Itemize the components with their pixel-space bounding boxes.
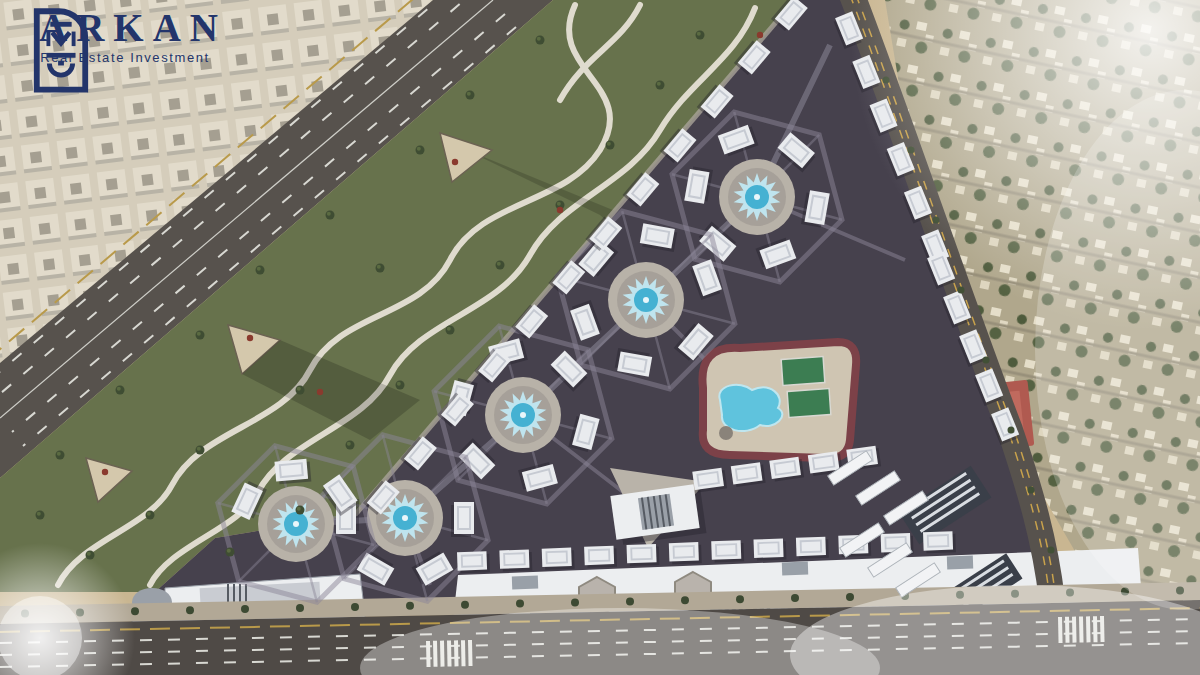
street-tree	[791, 594, 799, 602]
crosswalk-stripe	[454, 640, 459, 666]
red-shrub	[757, 32, 763, 38]
street-tree	[351, 603, 359, 611]
townhouse-row-unit	[692, 467, 727, 492]
street-tree	[736, 595, 744, 603]
palm-tree	[416, 146, 425, 155]
street-tree	[241, 605, 249, 613]
street-tree	[1008, 427, 1015, 434]
townhouse-row-unit	[542, 548, 575, 570]
palm-tree	[226, 548, 235, 557]
townhouse-row-unit	[627, 544, 660, 566]
palm-tree	[536, 36, 545, 45]
pool-fountain	[754, 194, 760, 200]
street-tree	[571, 599, 579, 607]
palm-tree	[296, 506, 305, 515]
master-plan-scene: ARKAN Real Estate Investment	[0, 0, 1200, 675]
crosswalk-stripe	[440, 641, 445, 667]
townhouse-row-unit	[711, 540, 744, 562]
palm-tree	[86, 551, 95, 560]
crosswalk-stripe	[1086, 616, 1091, 642]
red-shrub	[247, 335, 253, 341]
pool-fountain	[402, 515, 408, 521]
mall-roof-well	[947, 556, 973, 570]
street-tree	[21, 610, 29, 618]
townhouse-row-unit	[731, 462, 766, 487]
crosswalk-stripe	[468, 640, 473, 666]
townhouse-row-unit	[457, 551, 490, 573]
palm-tree	[496, 261, 505, 270]
street-tree	[131, 607, 139, 615]
palm-tree	[196, 331, 205, 340]
pool-fountain	[520, 412, 526, 418]
street-tree	[908, 147, 915, 154]
mall-roof-well	[512, 576, 538, 590]
townhouse-row-unit	[669, 542, 702, 564]
palm-tree	[56, 451, 65, 460]
street-tree	[933, 217, 940, 224]
red-shrub	[102, 469, 108, 475]
street-tree	[186, 606, 194, 614]
street-tree	[956, 591, 964, 599]
crosswalk-stripe	[461, 640, 466, 666]
crosswalk-stripe	[1058, 617, 1063, 643]
crosswalk-stripe	[433, 641, 438, 667]
street-tree	[1048, 547, 1055, 554]
palm-tree	[36, 511, 45, 520]
mall-roof-well	[782, 562, 808, 576]
crosswalk-stripe	[1065, 617, 1070, 643]
palm-tree	[326, 211, 335, 220]
sports-court	[787, 389, 831, 418]
townhouse-row-unit	[769, 456, 804, 481]
red-shrub	[317, 389, 323, 395]
pool-fountain	[293, 521, 299, 527]
street-tree	[461, 601, 469, 609]
street-tree	[1066, 589, 1074, 597]
street-tree	[626, 597, 634, 605]
crosswalk-stripe	[1079, 616, 1084, 642]
villa-building	[451, 502, 474, 537]
townhouse-row-unit	[584, 546, 617, 568]
street-tree	[958, 287, 965, 294]
palm-tree	[446, 326, 455, 335]
palm-tree	[346, 441, 355, 450]
palm-tree	[256, 266, 265, 275]
sports-court	[781, 357, 825, 386]
red-shrub	[557, 207, 563, 213]
palm-tree	[296, 386, 305, 395]
townhouse-row-unit	[499, 549, 532, 571]
palm-tree	[606, 141, 615, 150]
site-plan-map	[0, 0, 1200, 675]
palm-tree	[396, 381, 405, 390]
pool-deck-island	[719, 426, 733, 440]
street-tree	[406, 602, 414, 610]
crosswalk-stripe	[1093, 616, 1098, 642]
pool-fountain	[643, 297, 649, 303]
crosswalk-stripe	[447, 640, 452, 666]
arkan-logo-mark	[30, 4, 92, 94]
palm-tree	[146, 511, 155, 520]
brand-logo: ARKAN Real Estate Investment	[30, 4, 220, 65]
crosswalk-stripe	[1072, 617, 1077, 643]
palm-tree	[196, 446, 205, 455]
street-tree	[76, 608, 84, 616]
crosswalk-stripe	[1100, 616, 1105, 642]
street-tree	[516, 600, 524, 608]
townhouse-row-unit	[754, 538, 787, 560]
villa-building	[274, 459, 311, 485]
street-tree	[681, 596, 689, 604]
street-tree	[296, 604, 304, 612]
palm-tree	[376, 264, 385, 273]
street-tree	[1028, 487, 1035, 494]
palm-tree	[656, 81, 665, 90]
street-tree	[1011, 590, 1019, 598]
townhouse-row-unit	[923, 531, 956, 553]
palm-tree	[116, 386, 125, 395]
street-tree	[983, 357, 990, 364]
townhouse-row-unit	[796, 537, 829, 559]
street-tree	[1176, 586, 1184, 594]
street-tree	[883, 77, 890, 84]
street-tree	[846, 593, 854, 601]
red-shrub	[452, 159, 458, 165]
crosswalk-stripe	[426, 641, 431, 667]
street-tree	[1121, 588, 1129, 596]
palm-tree	[696, 31, 705, 40]
palm-tree	[466, 91, 475, 100]
lagoon-pool	[719, 385, 782, 431]
